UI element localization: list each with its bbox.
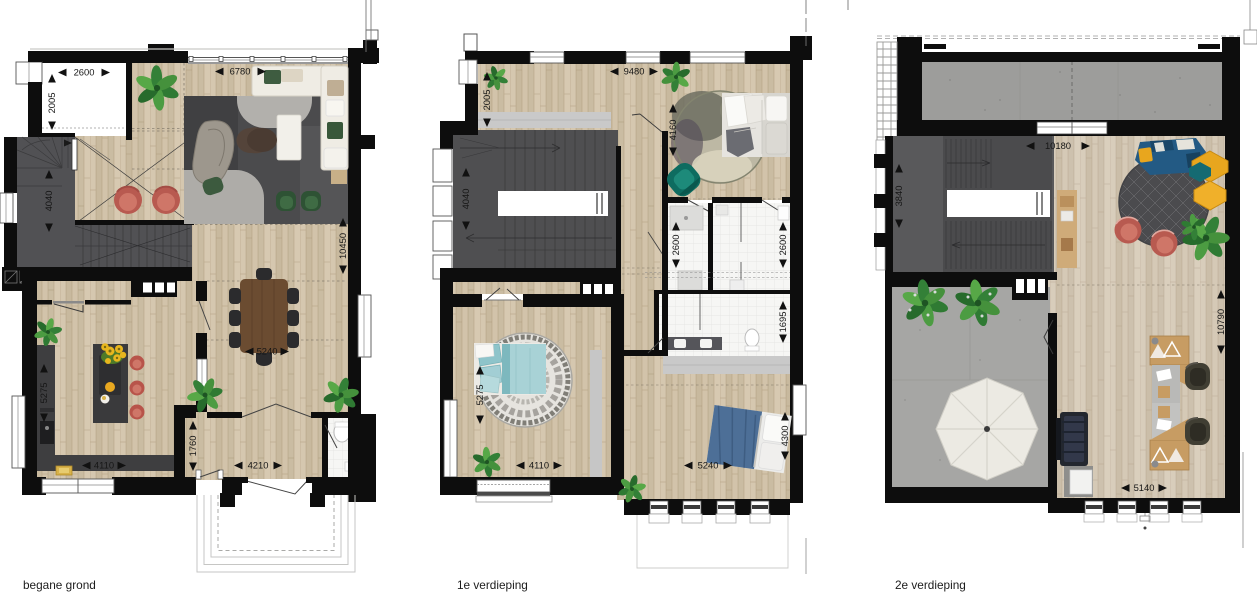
- svg-text:2600: 2600: [670, 235, 681, 256]
- svg-text:4040: 4040: [460, 189, 471, 210]
- svg-text:4110: 4110: [529, 460, 549, 471]
- svg-text:9480: 9480: [624, 66, 645, 77]
- svg-text:10790: 10790: [1215, 309, 1226, 335]
- svg-text:2e verdieping: 2e verdieping: [895, 578, 966, 592]
- svg-text:6780: 6780: [230, 66, 251, 77]
- svg-text:5140: 5140: [1134, 482, 1155, 493]
- svg-text:5240: 5240: [257, 346, 278, 357]
- svg-text:1760: 1760: [187, 436, 198, 457]
- svg-text:1695: 1695: [777, 312, 788, 333]
- svg-text:5275: 5275: [38, 383, 49, 404]
- svg-text:2600: 2600: [777, 235, 788, 256]
- svg-text:2600: 2600: [74, 67, 95, 78]
- svg-text:4160: 4160: [667, 120, 678, 141]
- svg-text:begane grond: begane grond: [23, 578, 96, 592]
- svg-text:5240: 5240: [698, 460, 719, 471]
- svg-text:5275: 5275: [474, 385, 485, 406]
- svg-text:4210: 4210: [248, 460, 269, 471]
- svg-text:1e verdieping: 1e verdieping: [457, 578, 528, 592]
- svg-text:3840: 3840: [893, 186, 904, 207]
- svg-text:10180: 10180: [1045, 140, 1071, 151]
- svg-text:10450: 10450: [337, 233, 348, 259]
- svg-text:2005: 2005: [46, 93, 57, 114]
- svg-text:4040: 4040: [43, 191, 54, 212]
- svg-text:4300: 4300: [779, 426, 790, 447]
- svg-text:2005: 2005: [481, 90, 492, 111]
- svg-text:4110: 4110: [94, 460, 114, 471]
